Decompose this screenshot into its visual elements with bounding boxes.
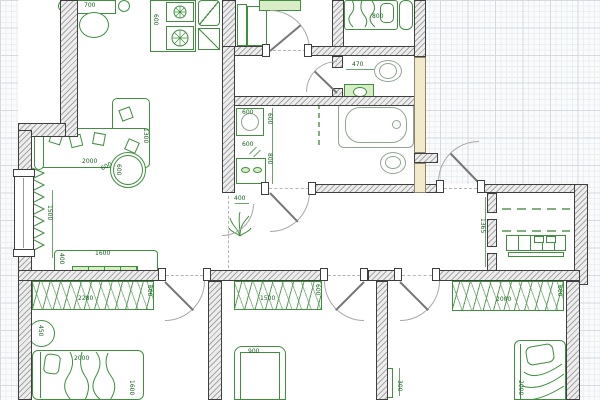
closet-drawer (546, 236, 556, 243)
faucet (241, 167, 250, 173)
wall (60, 0, 78, 137)
door-threshold (328, 275, 360, 276)
faucet (253, 167, 262, 173)
window-glass-line (23, 178, 24, 248)
window-jamb (13, 249, 35, 257)
curtain (32, 168, 46, 252)
armchair-seat[interactable] (247, 6, 267, 46)
door-jamb (432, 268, 440, 281)
door-jamb (394, 268, 402, 281)
sofa-pillow (92, 132, 106, 146)
stove-burner-icon (170, 28, 190, 48)
wall (566, 281, 580, 400)
door-jamb (261, 182, 269, 195)
dim-bath-side-b: 800 (266, 153, 272, 164)
armchair-back[interactable] (237, 4, 247, 46)
toilet-seat (379, 63, 397, 79)
wall (208, 270, 324, 281)
door-threshold (166, 275, 203, 276)
door-jamb (360, 268, 368, 281)
wall (18, 270, 163, 281)
door-jamb (203, 268, 211, 281)
dim-living-height: 1500 (46, 205, 52, 220)
closet-rail-dashed (502, 208, 570, 210)
door-threshold (268, 50, 306, 51)
window-jamb (13, 169, 35, 177)
door-jamb (436, 180, 444, 193)
door-threshold (269, 188, 309, 189)
wall (222, 46, 235, 193)
wall (487, 219, 497, 247)
door-threshold (402, 275, 432, 276)
desk[interactable] (259, 0, 301, 11)
dim-line (346, 69, 374, 70)
dim-bath-side-a: 600 (266, 113, 272, 124)
dim-kitchen-unit: 600 (152, 14, 158, 25)
dim-line (52, 190, 53, 258)
dim-living-sofa-d: 1300 (142, 128, 148, 143)
closet-base-rail (508, 252, 564, 257)
wall-insulated (414, 57, 426, 153)
dim-bed1-w: 2000 (74, 356, 89, 362)
dining-chair[interactable] (118, 0, 130, 12)
dim-wd1-w: 2280 (78, 296, 93, 302)
kitchen-cabinet[interactable] (198, 28, 220, 50)
dim-mirror: 300 (396, 380, 402, 391)
door-jamb (320, 268, 328, 281)
dim-side-table: 450 (37, 325, 43, 336)
sink-drain-icon (172, 4, 188, 20)
wall (487, 193, 497, 213)
door-jamb (262, 44, 270, 57)
dim-wd2-d: 600 (314, 284, 320, 295)
dim-top-bed: 800 (372, 14, 383, 20)
closet-rail-dashed (502, 230, 570, 232)
bed-inner-line (240, 352, 280, 400)
door-threshold (444, 188, 477, 189)
window[interactable] (14, 176, 34, 250)
shower-curtain (318, 104, 320, 148)
dim-closet-depth: 1365 (479, 218, 485, 233)
pillow[interactable] (43, 353, 62, 375)
dim-wd3-d: 600 (556, 285, 562, 296)
door-jamb (308, 182, 316, 195)
dim-tv-w: 1600 (95, 251, 110, 257)
door-jamb (158, 268, 166, 281)
dim-wc-width: 470 (352, 62, 363, 68)
wall (436, 270, 580, 281)
closet-drawer (534, 236, 544, 243)
wall (479, 184, 588, 193)
wall (208, 281, 222, 400)
interior-hall-east (425, 184, 487, 281)
door-jamb (304, 44, 312, 57)
wall (222, 96, 425, 106)
bedside-unit[interactable] (399, 0, 413, 30)
bathtub-drain (392, 120, 401, 129)
dim-bed2-w: 900 (248, 349, 259, 355)
wall (306, 46, 425, 56)
dim-bath-shelf: 600 (242, 142, 253, 148)
dim-wd2-w: 1500 (260, 296, 275, 302)
bed-blanket (522, 362, 564, 400)
bed-blanket (62, 352, 124, 400)
wall (414, 0, 426, 57)
wall (376, 281, 388, 400)
bathroom-sink-bowl (385, 156, 401, 169)
dim-tv-d: 400 (58, 253, 64, 264)
floorplan-canvas[interactable]: 700 600 800 470 600 600 600 800 400 (0, 0, 600, 400)
dining-chair[interactable] (79, 12, 109, 38)
dim-wd1-d: 600 (146, 285, 152, 296)
fridge[interactable] (198, 0, 220, 26)
wall-insulated (414, 163, 426, 193)
door-jamb (477, 180, 485, 193)
wall (414, 153, 438, 163)
dim-bed1-l: 1600 (128, 380, 134, 395)
dim-hall-pass: 400 (234, 196, 245, 202)
dim-wd3-w: 2000 (496, 297, 511, 303)
dim-bed3-l: 2000 (517, 380, 523, 395)
dim-dining-table: 700 (84, 3, 95, 9)
bed-headboard (40, 352, 41, 398)
wardrobe[interactable] (234, 281, 322, 310)
dim-living-sofa-w: 2000 (82, 159, 97, 165)
dim-washer: 600 (242, 110, 253, 116)
dim-living-table-b: 600 (115, 164, 121, 175)
